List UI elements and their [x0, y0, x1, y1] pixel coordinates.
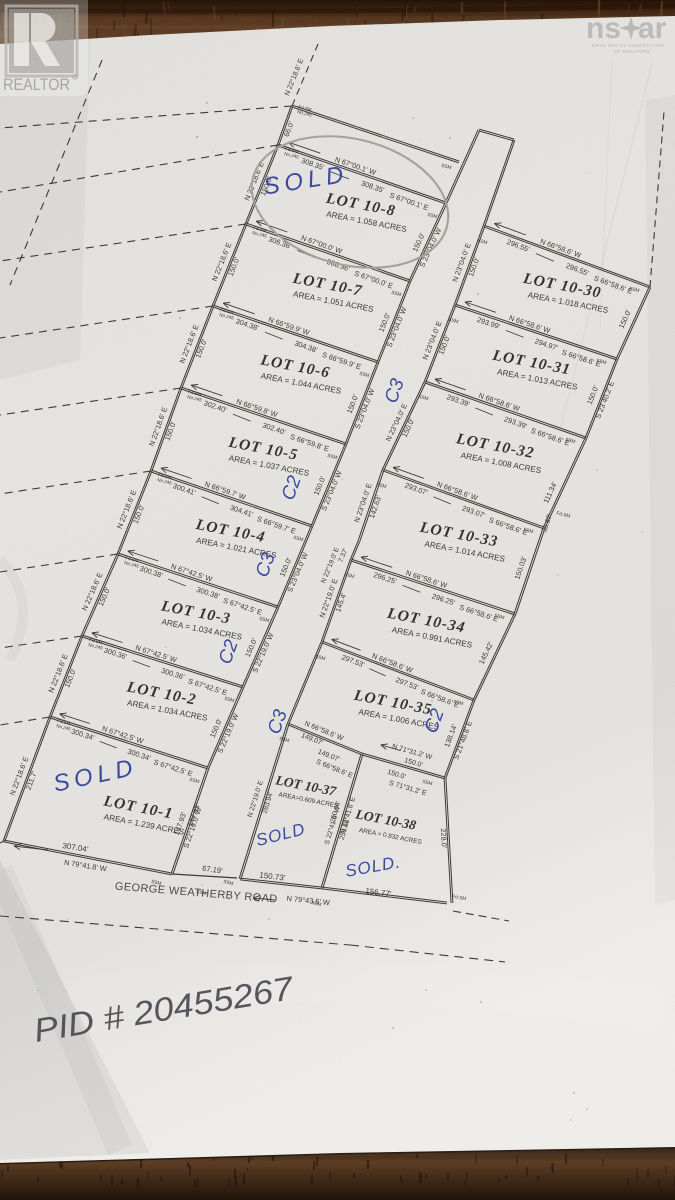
svg-text:OF REALTORS: OF REALTORS [614, 49, 650, 54]
svg-text:ns: ns [586, 12, 621, 45]
svg-text:NOVA SCOTIA ASSOCIATION: NOVA SCOTIA ASSOCIATION [592, 43, 664, 48]
svg-text:®: ® [72, 73, 78, 82]
svg-text:REALTOR: REALTOR [3, 76, 70, 94]
svg-text:ar: ar [638, 12, 667, 45]
svg-text:228.0': 228.0' [439, 828, 449, 849]
